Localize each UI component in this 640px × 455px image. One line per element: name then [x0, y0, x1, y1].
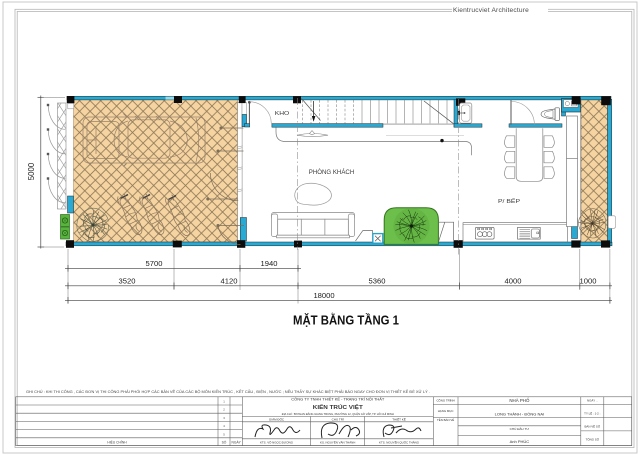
svg-text:GHI CHÚ : KHI THI CÔNG , CÁC Đ: GHI CHÚ : KHI THI CÔNG , CÁC ĐƠN VỊ THI …: [26, 389, 430, 394]
svg-text:TỔNG SỐ: TỔNG SỐ: [586, 437, 600, 442]
svg-text:KS. NGUYỄN VĂN THÀNH: KS. NGUYỄN VĂN THÀNH: [320, 439, 355, 444]
svg-text:ĐỊA CHỈ : 58 PHAN ĐĂNG GIANG T: ĐỊA CHỈ : 58 PHAN ĐĂNG GIANG TRUNG, PHƯỜ…: [282, 411, 394, 416]
svg-text:HIỆU CHỈNH: HIỆU CHỈNH: [107, 439, 127, 444]
svg-text:GIÁM ĐỐC: GIÁM ĐỐC: [269, 417, 285, 422]
svg-text:KIẾN TRÚC VIỆT: KIẾN TRÚC VIỆT: [313, 403, 363, 411]
svg-text:18000: 18000: [313, 291, 334, 300]
svg-text:THIẾT KẾ: THIẾT KẾ: [392, 417, 405, 422]
svg-text:P/ BẾP: P/ BẾP: [498, 198, 520, 205]
svg-text:Kientrucviet Architecture: Kientrucviet Architecture: [453, 7, 529, 14]
svg-text:CHỦ ĐẦU TƯ: CHỦ ĐẦU TƯ: [510, 426, 530, 431]
svg-text:5700: 5700: [146, 259, 163, 268]
svg-text:5360: 5360: [369, 277, 386, 286]
svg-text:BẢN VẼ SỐ: BẢN VẼ SỐ: [585, 424, 601, 429]
svg-text:5000: 5000: [27, 162, 36, 180]
svg-text:3520: 3520: [119, 277, 136, 286]
svg-text:KHO: KHO: [275, 111, 290, 117]
svg-text:1000: 1000: [580, 277, 597, 286]
svg-text:SỐ: SỐ: [222, 439, 227, 444]
svg-text:LONG THÀNH - ĐỒNG NAI: LONG THÀNH - ĐỒNG NAI: [495, 411, 545, 416]
svg-text:1940: 1940: [261, 259, 278, 268]
svg-text:Anh PHÚC: Anh PHÚC: [510, 439, 530, 444]
svg-text:PHÒNG KHÁCH: PHÒNG KHÁCH: [309, 167, 355, 176]
svg-text:CÔNG TY TNHH THIẾT KẾ - TRANG: CÔNG TY TNHH THIẾT KẾ - TRANG TRÍ NỘI TH…: [291, 397, 384, 402]
svg-text:NGÀY: NGÀY: [232, 440, 242, 444]
svg-text:NHÀ PHỐ: NHÀ PHỐ: [509, 398, 530, 403]
svg-text:MẶT BẰNG TẦNG 1: MẶT BẰNG TẦNG 1: [293, 313, 399, 328]
svg-text:HẠNG MỤC: HẠNG MỤC: [438, 409, 454, 413]
svg-text:TÊN BẢN VẼ: TÊN BẢN VẼ: [437, 417, 454, 422]
svg-text:NGÀY ..: NGÀY ..: [587, 399, 598, 403]
svg-text:TỶ LỆ : 1-2 :: TỶ LỆ : 1-2 :: [584, 411, 600, 416]
svg-text:KTS. NGUYỄN QUỐC THẮNG: KTS. NGUYỄN QUỐC THẮNG: [379, 439, 420, 444]
svg-text:KTS. VÕ NGỌC ĐƯƠNG: KTS. VÕ NGỌC ĐƯƠNG: [260, 439, 294, 444]
svg-text:4120: 4120: [221, 277, 238, 286]
svg-text:4000: 4000: [505, 277, 522, 286]
svg-text:CHỦ TRÌ: CHỦ TRÌ: [332, 417, 344, 422]
svg-text:CÔNG TRÌNH: CÔNG TRÌNH: [436, 398, 454, 403]
